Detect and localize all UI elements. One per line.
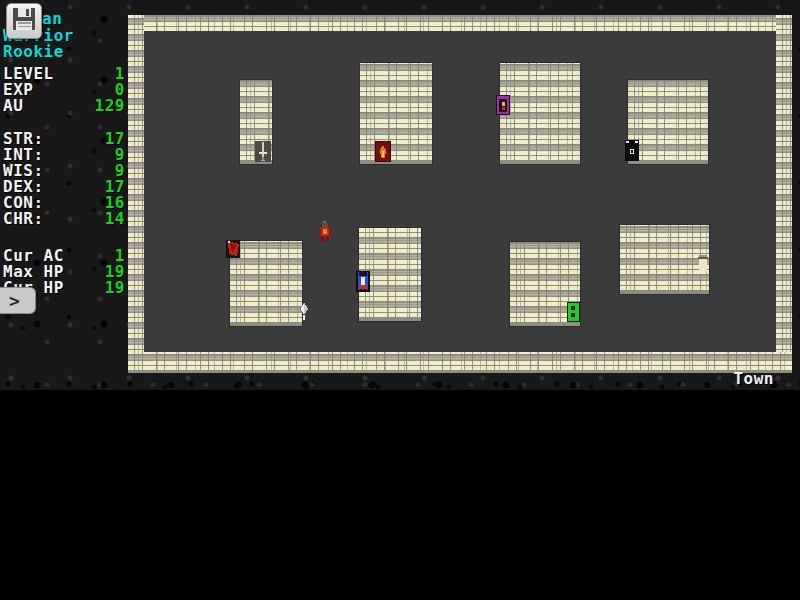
save-button[interactable] <box>6 3 42 39</box>
dark-tower-entrance-icon <box>625 140 639 161</box>
building-2 <box>360 63 432 164</box>
white-arrow-item-icon <box>297 301 311 321</box>
building-5 <box>230 241 302 326</box>
green-door-entrance-icon <box>567 302 580 322</box>
red-banner-entrance-icon <box>226 240 240 258</box>
game-screen: Town an Warrior Rookie LEVEL 1 EXP 0 AU … <box>0 0 800 600</box>
chr-label: CHR: <box>3 209 44 228</box>
stat-row-int: INT: 9 <box>3 145 125 161</box>
maxhp-row: Max HP 19 <box>3 262 125 278</box>
gold-row: AU 129 <box>3 96 125 112</box>
town-wall-bottom <box>128 352 792 373</box>
gold-label: AU <box>3 96 23 115</box>
player-character <box>318 221 332 243</box>
ac-row: Cur AC 1 <box>3 246 125 262</box>
more-prompt-button[interactable]: > <box>0 287 36 314</box>
save-icon <box>11 6 37 36</box>
chr-value: 14 <box>105 209 125 228</box>
blue-robed-figure-entrance-icon <box>356 271 370 292</box>
prompt-icon: > <box>9 290 20 311</box>
location-label: Town <box>733 371 774 387</box>
stat-row-wis: WIS: 9 <box>3 161 125 177</box>
character-title: Rookie <box>3 44 64 60</box>
character-name: an <box>42 11 62 27</box>
town-wall-top <box>128 15 792 31</box>
stat-row-str: STR: 17 <box>3 129 125 145</box>
town-wall-right <box>776 15 792 370</box>
flame-door-entrance-icon <box>375 141 391 162</box>
play-area: Town an Warrior Rookie LEVEL 1 EXP 0 AU … <box>0 0 800 390</box>
gold-value: 129 <box>95 96 125 115</box>
level-row: LEVEL 1 <box>3 64 125 80</box>
stat-row-dex: DEX: 17 <box>3 177 125 193</box>
stat-row-con: CON: 16 <box>3 193 125 209</box>
purple-door-entrance-icon <box>496 95 510 115</box>
building-4 <box>628 80 708 164</box>
building-3 <box>500 63 580 164</box>
weapon-sword-entrance-icon <box>255 141 271 162</box>
town-wall-left <box>128 15 144 370</box>
exp-row: EXP 0 <box>3 80 125 96</box>
stat-row-chr: CHR: 14 <box>3 209 125 225</box>
curhp-value: 19 <box>105 278 125 297</box>
pale-figure-entrance-icon <box>696 254 710 275</box>
